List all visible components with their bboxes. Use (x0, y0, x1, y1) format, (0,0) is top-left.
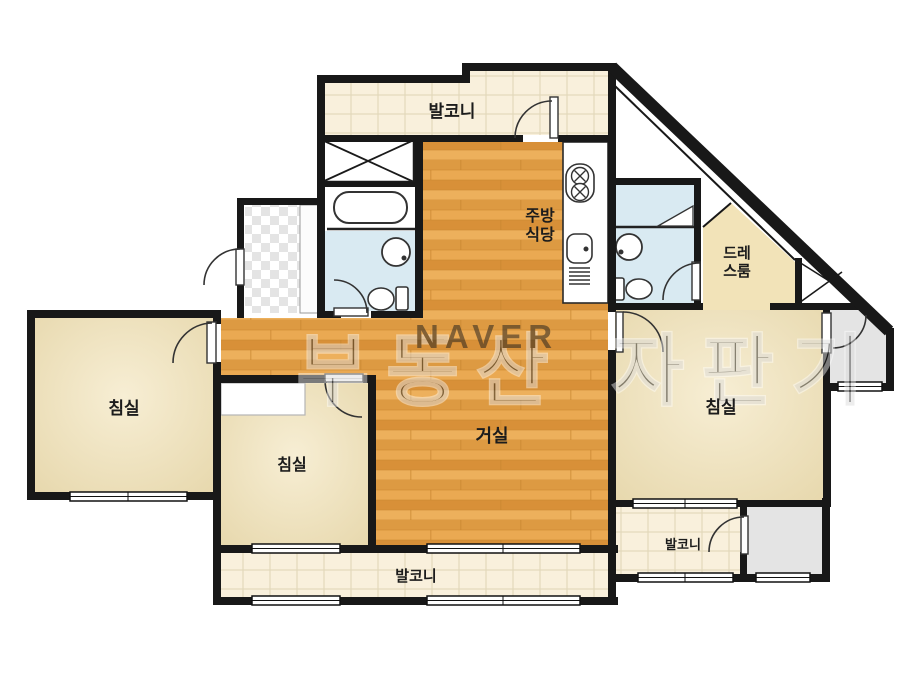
walls-part (322, 182, 415, 187)
sink-right-icon (616, 234, 642, 260)
balcony-bottom-label: 발코니 (395, 568, 436, 585)
watermark-brand: NAVER (415, 318, 558, 355)
balcony-right-label: 발코니 (665, 537, 701, 552)
bedroom-left-label: 침실 (108, 398, 139, 418)
dressing-label-line2: 스룸 (723, 263, 751, 280)
walls-part (462, 63, 616, 71)
walls-part (371, 311, 423, 318)
toilet-right-icon-part (626, 279, 652, 299)
toilet-left-icon-part (396, 287, 408, 310)
walls-part (611, 303, 703, 310)
balcony-top-door-part (550, 97, 558, 138)
floor-plan-drawing: 부동산 자판기 NAVER 발코니 주방 식당 드레 스룸 침실 침실 침실 거… (0, 0, 923, 676)
kitchen-sink-icon-part (584, 247, 588, 251)
walls-part (608, 178, 700, 185)
entry-door (204, 249, 244, 285)
bedroom-middle-label: 침실 (277, 455, 306, 474)
walls-part (237, 284, 244, 318)
dressing-label-line1: 드레 (723, 245, 751, 262)
window-utility-bottom (756, 573, 810, 582)
living-room-label: 거실 (475, 426, 508, 446)
entry-door-part (204, 249, 240, 285)
window-bedroom-left (70, 492, 187, 501)
utility-room-bottom-floor (747, 507, 822, 574)
window-bedroom-right (633, 499, 737, 508)
walls-part (317, 75, 325, 318)
walls-part (237, 198, 325, 205)
toilet-left-icon (368, 287, 408, 310)
walls-part (886, 328, 894, 391)
window-balcony-right-outer (638, 573, 733, 582)
stove-icon (566, 164, 594, 202)
storage-closet-x-icon (322, 140, 414, 182)
kitchen-label-line1: 주방 (525, 207, 555, 225)
wardrobe-bedroom-middle (221, 383, 305, 415)
entry-checker-floor (245, 205, 300, 313)
window-bedroom-middle-inner (252, 544, 340, 553)
window-balcony-bottom-left (252, 596, 340, 605)
walls-part (558, 135, 616, 142)
bedroom-right-label: 침실 (705, 397, 736, 417)
bathroom-left-door-part (334, 308, 368, 316)
kitchen-sink-icon (567, 234, 592, 263)
walls-part (27, 310, 220, 318)
walls-part (237, 198, 244, 252)
entry-door-part (236, 249, 244, 285)
floor-plan-page: 부동산 자판기 NAVER 발코니 주방 식당 드레 스룸 침실 침실 침실 거… (0, 0, 923, 676)
bedroom-left-door-part (207, 322, 216, 363)
sink-left-icon-part (402, 256, 406, 260)
toilet-right-icon (613, 278, 652, 300)
window-balcony-bottom-right (427, 596, 580, 605)
kitchen-label-line2: 식당 (525, 226, 555, 244)
walls-part (608, 63, 616, 312)
sink-right-icon-part (619, 250, 623, 254)
walls-part (27, 310, 35, 500)
watermark-text-right: 자판기 (612, 327, 881, 415)
bathtub-icon (334, 192, 407, 223)
walls-part (740, 500, 747, 516)
walls-part (213, 362, 221, 605)
balcony-top-label: 발코니 (429, 102, 476, 121)
walls-part (317, 75, 470, 83)
sink-left-icon (382, 238, 410, 266)
toilet-left-icon-part (368, 288, 394, 310)
sink-left-icon-part (382, 238, 410, 266)
balcony-right-door-part (741, 516, 748, 554)
bathroom-right-door-part (692, 262, 700, 300)
walls-part (822, 498, 830, 582)
sink-right-icon-part (616, 234, 642, 260)
window-living-inner (427, 544, 580, 553)
walls-part (415, 135, 423, 318)
walls-part (795, 258, 802, 310)
